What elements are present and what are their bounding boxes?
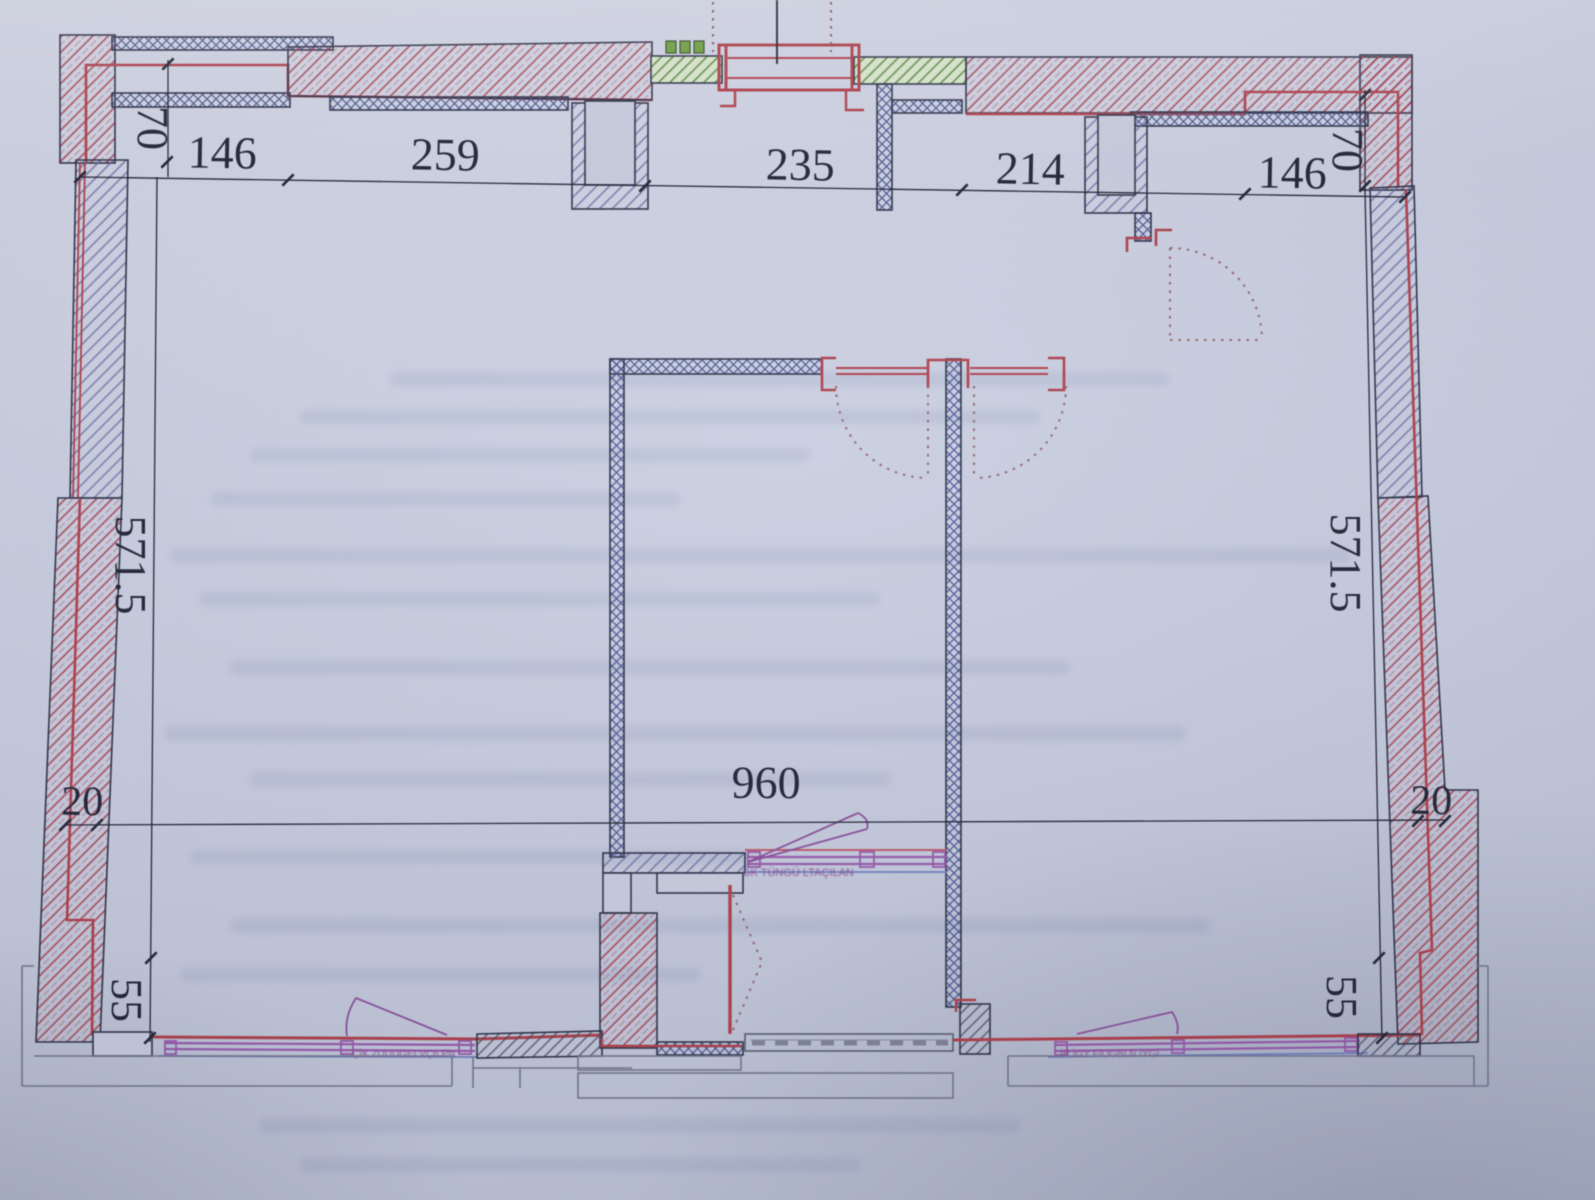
glazing-mullion: [1345, 1038, 1357, 1051]
dim-text-20-left: 20: [61, 779, 104, 826]
window-right-spec-label: İR İGY FIOGBLN İYGİ: [1060, 1047, 1159, 1060]
entrance-lintel-left: [651, 56, 722, 83]
dimension-texts: 146 259 235 214 146 70 70 571.5 571.5 20…: [61, 106, 1453, 1022]
floor-plan-photo: GK TÜNGÜ LTAÇILAN ÇİK ZUUUGEI VÇ6 PN: [0, 0, 1595, 1200]
entry-stub-wall: [877, 84, 962, 210]
wall-top-right-block: [966, 57, 1412, 113]
door-frame-hooks: [720, 90, 864, 110]
balcony-step-lines: [473, 1056, 632, 1088]
balcony-outline-center-outer: [578, 1073, 953, 1098]
bathroom-notch: [603, 873, 631, 913]
balcony-door-spec-label: GK TÜNGÜ LTAÇILAN: [742, 867, 854, 879]
hinge-mark-icon: [694, 41, 704, 53]
dim-text-20-right: 20: [1410, 778, 1453, 825]
hall-left-partition: [610, 359, 624, 857]
hall-right-partition: [946, 359, 961, 1007]
window-tilt-fan-icon: [1077, 1012, 1178, 1034]
sill-left: [477, 1031, 602, 1058]
bathroom-west-wall: [600, 913, 657, 1048]
entrance-door-assembly: [651, 0, 966, 110]
door-lintel-hall-right: [970, 368, 1048, 374]
dim-text-55-left: 55: [102, 978, 151, 1022]
wall-top-middle-masonry-strip: [330, 97, 568, 110]
door-swing-hall-right: [974, 386, 1066, 478]
wall-stub-bottom-left: [93, 1032, 152, 1056]
sill-right: [1358, 1034, 1420, 1056]
entrance-lintel-right: [854, 57, 966, 84]
bathroom-north-wall: [603, 853, 745, 873]
window-left-spec-label: ÇİK ZUUUGEI VÇ6 PN: [352, 1047, 455, 1060]
balcony-door-threshold: [745, 1034, 953, 1051]
door-swing-right-room: [1170, 248, 1262, 340]
entrance-door-frame: [719, 45, 859, 90]
dim-line-middle: [65, 820, 1445, 825]
dim-text-70-right: 70: [1323, 128, 1372, 172]
bathroom-walls: [600, 853, 762, 1048]
bathroom-door-swing: [733, 895, 762, 1030]
dim-text-571-left: 571.5: [106, 516, 155, 615]
dim-text-55-right: 55: [1317, 975, 1366, 1019]
pier-right-of-entry: [1085, 115, 1172, 252]
dim-text-top-146-left: 146: [187, 126, 257, 178]
wall-top-middle-block: [288, 42, 652, 100]
wall-top-left-corner-block: [60, 35, 115, 163]
window-tilt-fan-icon: [346, 998, 447, 1036]
door-swing-hall-left: [836, 386, 928, 478]
dim-text-960: 960: [731, 757, 800, 809]
floor-plan-drawing: GK TÜNGÜ LTAÇILAN ÇİK ZUUUGEI VÇ6 PN: [0, 0, 1595, 1200]
hinge-mark-icon: [680, 41, 690, 53]
hall-top-partition: [610, 359, 822, 374]
door-lintel-hall-left: [836, 368, 928, 374]
bottom-wall: ÇİK ZUUUGEI VÇ6 PN İR İGY FIOGBLN İYGİ: [155, 998, 1420, 1060]
dim-line-top: [80, 177, 1405, 197]
wall-top-left-masonry-strip-inner: [112, 93, 290, 107]
window-tilt-fan-icon: [748, 813, 868, 862]
dim-text-top-259: 259: [410, 128, 480, 180]
glazing-mullion: [1172, 1040, 1184, 1053]
balcony-outlines: [22, 966, 1488, 1098]
wall-top-right-masonry-strip: [1131, 112, 1368, 126]
dim-text-top-146-right: 146: [1257, 146, 1327, 198]
pier-left-of-entrance: [572, 101, 648, 209]
sill-center-right: [960, 1004, 990, 1054]
threshold-masonry-strip: [657, 1042, 743, 1055]
window-bottom-left: ÇİK ZUUUGEI VÇ6 PN: [158, 998, 478, 1060]
dim-text-70-left: 70: [128, 106, 177, 150]
dim-text-571-right: 571.5: [1321, 514, 1370, 613]
dim-text-top-214: 214: [995, 142, 1065, 194]
right-wall-lower: [1378, 496, 1478, 1044]
top-exterior-wall: [60, 0, 1412, 340]
hinge-mark-icon: [666, 41, 676, 53]
dim-text-top-235: 235: [765, 138, 835, 190]
right-exterior-wall: [1370, 186, 1478, 1044]
